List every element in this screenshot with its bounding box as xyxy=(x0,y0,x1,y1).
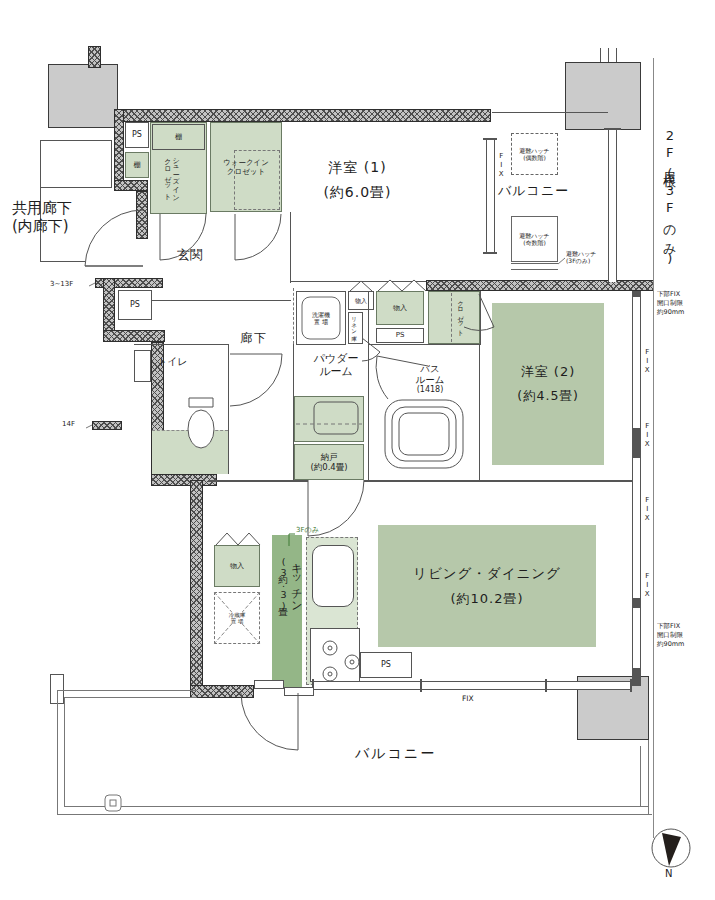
ps-label: PS xyxy=(118,290,152,320)
balcony-bottom-line2 xyxy=(64,806,648,807)
window-cap xyxy=(630,679,632,692)
shoes-closet-label: シューズイン クロゼット xyxy=(163,153,180,213)
wall-piece-right-mid xyxy=(632,428,641,458)
wall-piece-right-bottom xyxy=(632,668,641,686)
fix-label-3: FIX xyxy=(643,496,651,532)
window-cap xyxy=(483,252,497,254)
entrance-step-line xyxy=(151,300,291,301)
balcony-left-line2 xyxy=(64,697,65,807)
evac-hatch-band xyxy=(511,263,558,270)
living-label: リビング・ダイニング (約10.2畳) xyxy=(378,525,596,647)
shelf-label: 棚 xyxy=(125,152,149,178)
compass-north-label: N xyxy=(665,868,672,880)
toilet-right-line xyxy=(228,344,229,474)
floor-14-label: 14F xyxy=(62,420,75,428)
wall-left-upper xyxy=(114,109,124,184)
western1-label: 洋室 (1) (約6.0畳) xyxy=(250,148,465,212)
window-living-lower xyxy=(632,608,641,668)
entrance-label: 玄関 xyxy=(177,247,203,262)
corridor-boundary-h xyxy=(40,261,85,262)
structure-block-top-left xyxy=(48,64,118,128)
compass-icon xyxy=(652,829,690,867)
closet-label: クロゼット xyxy=(456,296,464,342)
fold-door-icon xyxy=(216,533,260,545)
window-cap xyxy=(483,138,497,140)
balcony-right-line1 xyxy=(648,740,649,814)
lower-wall-line-b xyxy=(364,480,632,482)
balcony-top-line1 xyxy=(57,690,197,691)
kitchen-sink xyxy=(312,545,354,607)
powder-open-dashed xyxy=(293,288,294,344)
fix-note-upper: 下部FIX 開口制限 約90mm xyxy=(657,290,684,316)
wall-stub-14f xyxy=(92,421,122,430)
evac-hatch-3f-label: 避難ハッチ (3Fのみ) xyxy=(566,250,596,264)
window-western2 xyxy=(632,297,641,428)
tick-line xyxy=(616,48,617,62)
toilet-floor-green xyxy=(152,430,228,474)
only-3f-label: 3Fのみ xyxy=(296,526,319,534)
toilet-tank-icon xyxy=(189,398,213,407)
wall-jog xyxy=(114,180,148,191)
floor-plan: PS 棚 棚 シューズイン クロゼット ウォークイン クロゼット 共用廊下 (内… xyxy=(0,0,715,900)
lower-wall-line-a xyxy=(208,480,308,482)
balcony-upper-railing xyxy=(608,130,617,282)
vanity-box xyxy=(294,396,364,442)
wall-top xyxy=(117,109,491,122)
western2-label: 洋室 (2) (約4.5畳) xyxy=(492,303,604,465)
closet-western2 xyxy=(428,291,480,344)
ps-label: PS xyxy=(360,652,412,678)
powder-right-line xyxy=(368,291,369,344)
balcony-lower-label: バルコニー xyxy=(355,745,436,762)
corridor-opening-box xyxy=(40,140,112,188)
kitchen-label: キッチン (約3.3畳) xyxy=(272,556,302,674)
hallway-label: 廊下 xyxy=(240,331,268,345)
floors-3-13-label: 3~13F xyxy=(50,280,73,288)
window-living-upper xyxy=(632,458,641,598)
storage-big-label: 物入 xyxy=(376,291,424,325)
wall-left-entry xyxy=(136,191,148,239)
evac-hatch-even-label: 避難ハッチ (偶数階) xyxy=(511,133,558,175)
window-cap xyxy=(420,679,422,692)
toilet-top-line xyxy=(134,344,228,345)
structure-block-top-right xyxy=(565,62,641,130)
toilet-niche xyxy=(134,350,151,382)
balcony-bottom-line1 xyxy=(57,814,652,815)
fold-door-icon xyxy=(350,281,372,291)
fix-label-2: FIX xyxy=(643,422,651,458)
western2-left-line xyxy=(480,291,481,345)
balcony-upper-label: バルコニー xyxy=(498,183,569,198)
balcony-top-line2 xyxy=(64,697,197,698)
western1-bottom-line xyxy=(290,281,426,282)
storeroom-label: 納戸 (約0.4畳) xyxy=(294,444,364,480)
wall-stub-top xyxy=(88,46,101,68)
window-western1 xyxy=(486,140,495,252)
closet-dashed-line xyxy=(451,293,452,342)
storage-small-label: 物入 xyxy=(348,291,374,310)
balcony-left-line1 xyxy=(57,690,58,815)
entrance-right-wall xyxy=(290,212,291,283)
fridge-label: 冷蔵庫 置 場 xyxy=(214,592,260,644)
kitchen-storage-label: 物入 xyxy=(214,545,260,587)
fix-label-south: FIX xyxy=(462,695,474,704)
tick-line xyxy=(608,48,609,62)
balcony-door-panel-a xyxy=(254,680,284,689)
wall-piece-right-low xyxy=(632,598,641,608)
balcony-door-panel-b xyxy=(284,687,314,696)
wall-left-lower xyxy=(190,480,203,698)
fix-label-1: FIX xyxy=(643,348,651,384)
bathroom-label: バス ルーム (1418) xyxy=(398,354,462,404)
wall-bottom-kitchen xyxy=(190,685,254,698)
hatch-3f-leader xyxy=(558,258,565,264)
kitchen-balcony-door-arc xyxy=(241,693,298,750)
wall-top-center xyxy=(426,280,654,291)
kitchen-stove xyxy=(310,628,360,682)
ps-label: PS xyxy=(125,122,149,148)
fix-label-4: FIX xyxy=(643,572,651,608)
common-corridor-label: 共用廊下 (内廊下) xyxy=(12,200,72,235)
entrance-door-arc xyxy=(85,210,143,266)
linen-label: リネン庫 xyxy=(351,313,357,343)
balcony-drain-icon xyxy=(105,795,121,811)
toilet-door-arc xyxy=(230,354,282,406)
fix-note-lower: 下部FIX 開口制限 約90mm xyxy=(657,622,684,648)
ps-label: PS xyxy=(376,328,424,343)
tick-line xyxy=(600,48,601,62)
shelf-label: 棚 xyxy=(152,124,205,150)
window-cap xyxy=(545,679,547,692)
toilet-label: トイレ xyxy=(157,356,188,368)
roof-label: 2F屋根(3Fのみ) xyxy=(662,128,677,378)
evac-hatch-odd-label: 避難ハッチ (奇数階) xyxy=(511,216,558,262)
walkin-closet-door-arc xyxy=(235,214,281,260)
roof-boundary-line xyxy=(653,58,654,838)
washer-label: 洗濯機 置 場 xyxy=(296,296,346,340)
powder-room-label: パウダー ルーム xyxy=(300,342,372,390)
railing-cap xyxy=(604,128,621,130)
wall-ps-bottom xyxy=(103,330,165,342)
balcony-upper-top-line xyxy=(492,112,608,113)
window-living-south xyxy=(312,681,632,690)
balcony-right-line2 xyxy=(640,746,641,806)
